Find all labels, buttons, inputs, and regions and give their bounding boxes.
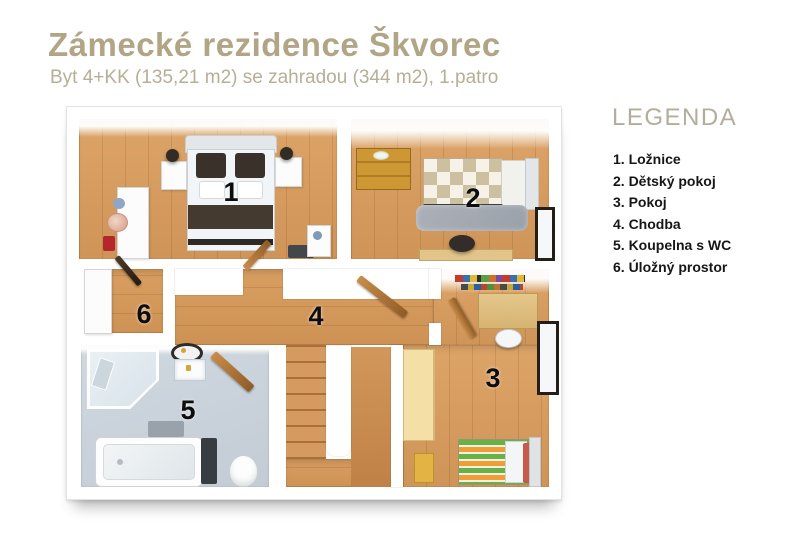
legend-item-pokoj: 3. Pokoj	[613, 192, 792, 214]
legend-item-chodba: 4. Chodba	[613, 214, 792, 236]
page-subtitle: Byt 4+KK (135,21 m2) se zahradou (344 m2…	[50, 67, 498, 89]
room-3-wardrobe	[403, 349, 435, 441]
legend-heading: LEGENDA	[612, 104, 792, 132]
pillow-dark-right	[235, 153, 265, 178]
room-3-desk	[478, 293, 538, 329]
toilet	[229, 455, 258, 487]
room-2-wall-face	[351, 119, 549, 149]
bedside-lamp-left	[166, 149, 179, 162]
room-3-stool	[414, 453, 434, 483]
staircase-lower-flight	[351, 347, 391, 487]
page-title: Zámecké rezidence Škvorec	[48, 26, 501, 64]
legend-item-loznice: 1. Ložnice	[613, 149, 792, 171]
legend-item-ulozny-prostor: 6. Úložný prostor	[613, 257, 792, 279]
hallway-wall-stub-left	[175, 269, 243, 295]
room-1-side-table	[307, 225, 331, 257]
room-3-desk-chair	[495, 329, 522, 348]
legend-panel: LEGENDA 1. Ložnice 2. Dětský pokoj 3. Po…	[612, 104, 792, 278]
legend-item-koupelna: 5. Koupelna s WC	[613, 235, 792, 257]
red-decor-item	[103, 236, 115, 251]
wall-bookshelf-row-2	[461, 284, 523, 290]
staircase-divider-wall	[326, 346, 351, 456]
room-3-window	[537, 321, 559, 395]
nightstand-right	[275, 157, 302, 187]
ceiling-lamp-bulb	[181, 348, 186, 353]
pillow-dark-left	[196, 153, 226, 178]
room-number-5: 5	[174, 395, 202, 426]
room-3-doorway-wall-upper	[429, 269, 441, 299]
hallway-wall-stub-right	[283, 269, 429, 299]
room-number-6: 6	[130, 299, 158, 330]
room-number-3: 3	[479, 363, 507, 394]
room-number-1: 1	[217, 177, 245, 208]
kids-bed-headboard	[525, 158, 539, 210]
side-table-cup	[313, 231, 322, 240]
sink-faucet	[186, 365, 191, 371]
floor-plan: 1 2 3 4 5 6	[66, 106, 562, 500]
decorative-plate	[107, 213, 128, 232]
room-3-bed-headboard	[529, 437, 541, 487]
room-number-2: 2	[459, 183, 487, 214]
staircase-side-wall	[391, 345, 403, 487]
room-2-window	[535, 207, 555, 261]
bed-runner-blanket	[188, 205, 273, 229]
staircase-steps	[286, 345, 326, 461]
room-number-4: 4	[302, 301, 330, 332]
room-3-doorway-wall-lower	[429, 323, 441, 345]
room-2-desk-chair	[449, 235, 475, 252]
bathtub-drain	[117, 459, 123, 465]
blue-decor-item	[113, 198, 125, 209]
legend-list: 1. Ložnice 2. Dětský pokoj 3. Pokoj 4. C…	[613, 149, 792, 278]
bed-foot-rail	[188, 239, 273, 245]
legend-item-detsky-pokoj: 2. Dětský pokoj	[613, 171, 792, 193]
nightstand-left	[161, 161, 187, 190]
kids-bed-pillow	[501, 160, 527, 208]
dresser-plant	[373, 151, 389, 160]
room-6-closet	[84, 269, 112, 334]
bathtub-panel	[201, 438, 217, 484]
page-canvas: Zámecké rezidence Škvorec Byt 4+KK (135,…	[0, 0, 800, 534]
wall-bookshelf-row-1	[455, 275, 525, 282]
bedside-lamp-right	[280, 147, 293, 160]
